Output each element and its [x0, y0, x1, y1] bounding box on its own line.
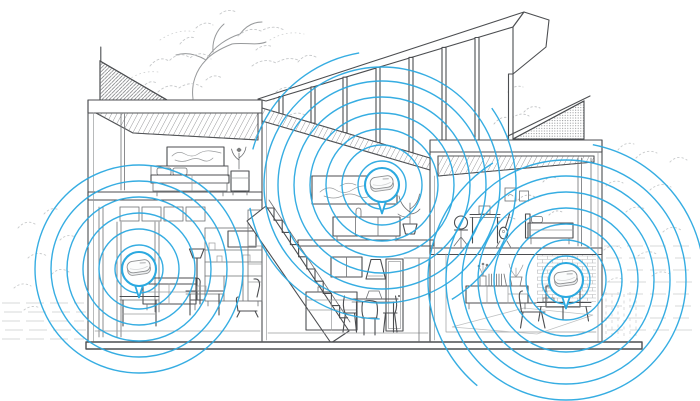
- ground-left: [2, 303, 86, 339]
- mesh-device-icon: [126, 259, 151, 276]
- bush-left-icon: [14, 209, 75, 310]
- house-cutaway-svg: [0, 0, 700, 401]
- nightstand: [231, 147, 249, 195]
- mesh-device-icon: [553, 270, 578, 287]
- side-table: [120, 297, 159, 327]
- roof-left-parapet: [100, 47, 167, 100]
- roof-right: [508, 96, 590, 139]
- wall-frames: [505, 188, 529, 201]
- desk: [470, 206, 500, 243]
- mesh-wifi-home-illustration: [0, 0, 700, 401]
- tree-center-icon: [494, 86, 564, 222]
- range-hood: [366, 260, 386, 280]
- mesh-device-icon: [369, 175, 394, 192]
- foundation: [86, 342, 642, 349]
- artwork-frame: [167, 147, 224, 166]
